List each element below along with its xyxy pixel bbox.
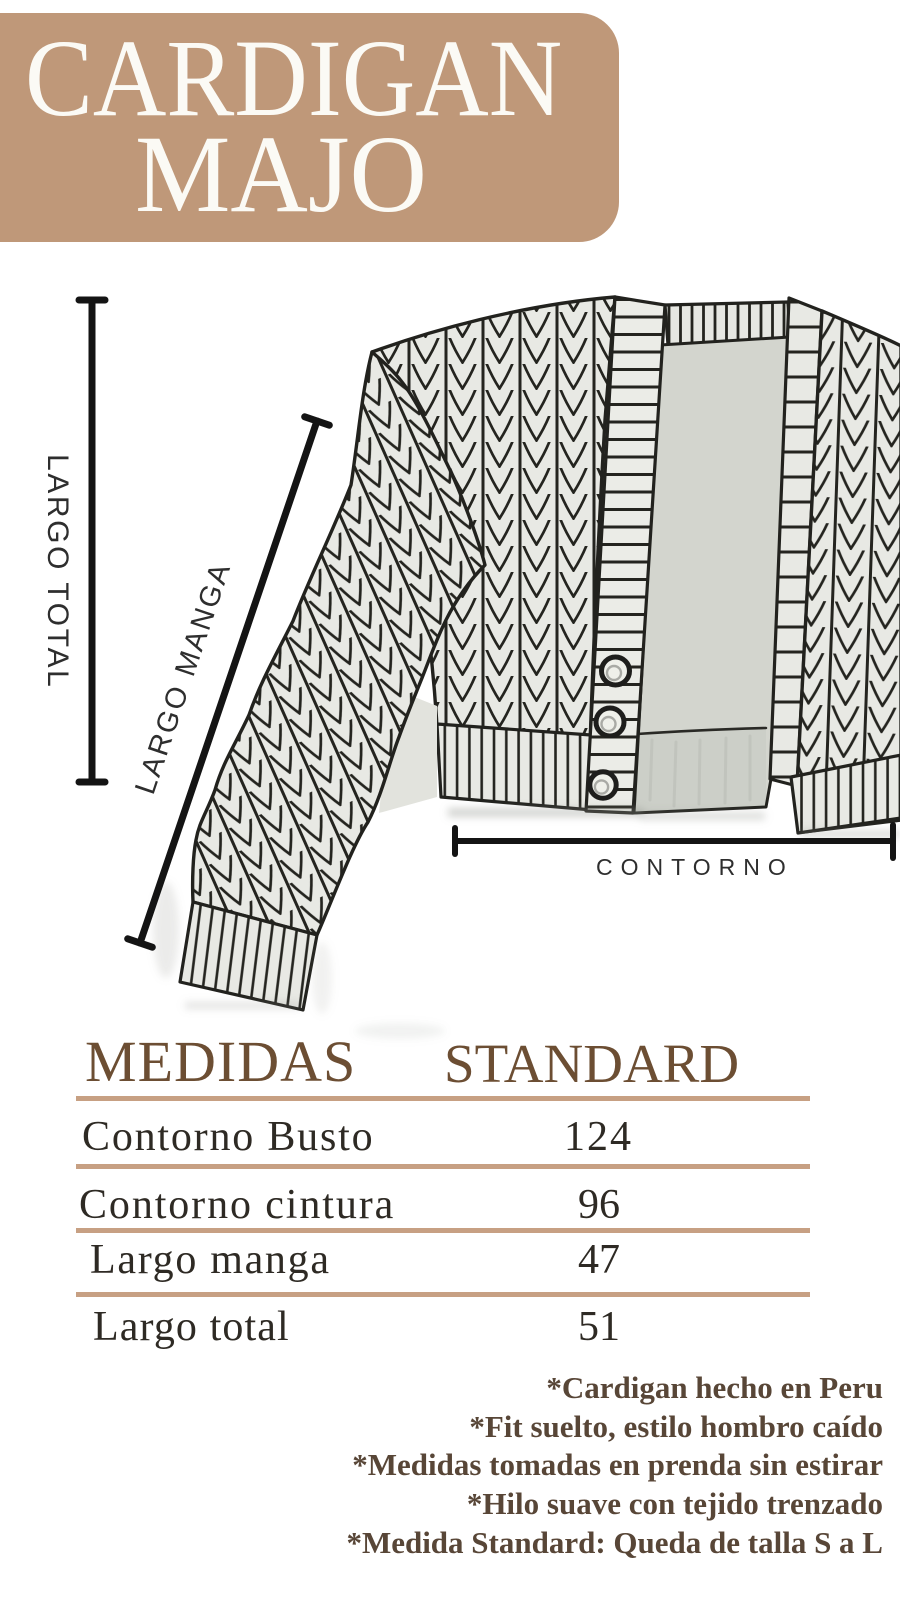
- svg-text:CONTORNO: CONTORNO: [596, 854, 794, 880]
- svg-text:LARGO TOTAL: LARGO TOTAL: [41, 454, 74, 689]
- svg-text:LARGO MANGA: LARGO MANGA: [129, 557, 237, 798]
